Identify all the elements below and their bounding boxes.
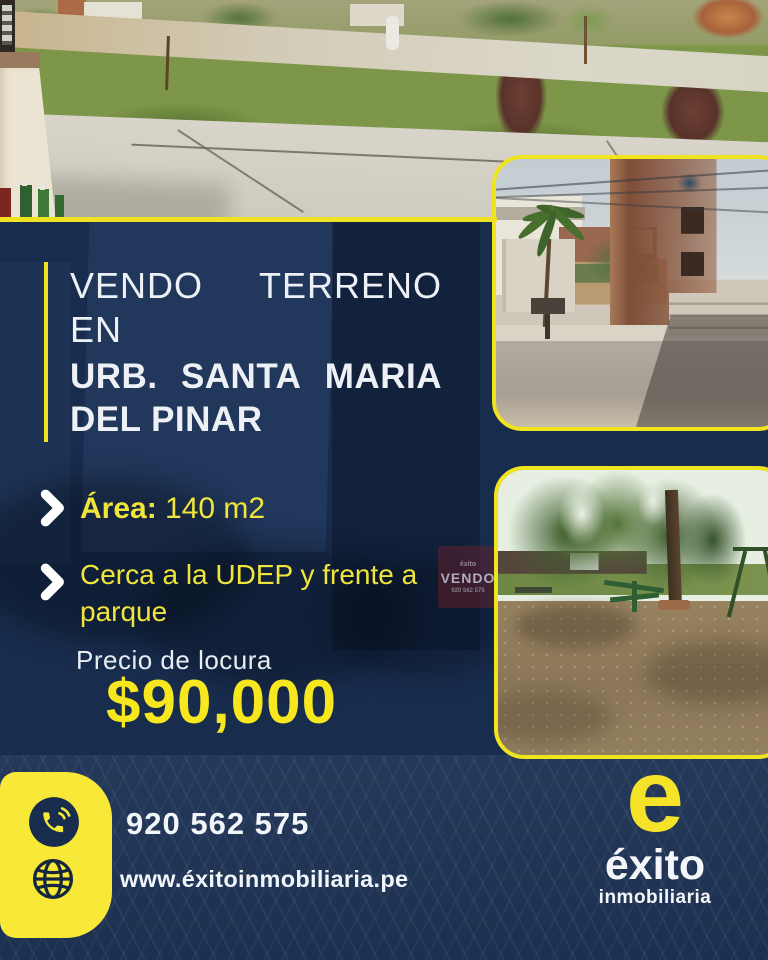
- title-line-1: VENDO TERRENO: [70, 264, 442, 308]
- swing-frame: [733, 547, 768, 552]
- title-accent-bar: [44, 262, 48, 442]
- feature-area: Área: 140 m2: [80, 492, 265, 526]
- chevron-right-icon: [38, 563, 68, 601]
- yellow-divider: [0, 217, 497, 222]
- title-word: TERRENO: [259, 264, 442, 308]
- globe-icon: [30, 856, 76, 902]
- brand-logo: e éxito inmobiliaria: [570, 744, 740, 908]
- feature-area-label: Área:: [80, 492, 157, 525]
- title-line-4: DEL PINAR: [70, 398, 442, 441]
- chevron-right-icon: [38, 489, 68, 527]
- sign-post: [545, 314, 550, 338]
- window-slats: [2, 5, 12, 45]
- title-word: VENDO: [70, 264, 203, 308]
- brick-ring: [658, 600, 689, 610]
- building-trim: [0, 52, 40, 70]
- distant-figure: [386, 16, 399, 50]
- brand-name: éxito: [570, 844, 740, 886]
- bottles: [0, 180, 140, 222]
- page-title: VENDO TERRENO EN URB. SANTA MARIA DEL PI…: [70, 264, 442, 441]
- title-line-2: EN: [70, 308, 442, 352]
- real-estate-flyer: éxito VENDO 920 562 575 VENDO TERRENO EN…: [0, 0, 768, 960]
- price-value: $90,000: [106, 668, 337, 738]
- brand-descriptor: inmobiliaria: [570, 888, 740, 908]
- title-line-3: URB. SANTA MARIA: [70, 355, 442, 398]
- playground-equipment: [632, 581, 637, 612]
- street-sign: [531, 298, 566, 314]
- inset-photo-street-lot: [492, 155, 768, 431]
- tree-trunk: [584, 16, 587, 64]
- phone-icon: [28, 796, 80, 848]
- sign-brand: éxito: [460, 561, 476, 568]
- title-word: URB.: [70, 355, 158, 398]
- tree-shadow: [515, 604, 635, 647]
- brand-mark-e: e: [570, 744, 740, 848]
- title-word: MARIA: [325, 355, 442, 398]
- title-word: SANTA: [181, 355, 301, 398]
- website-url: www.éxitoinmobiliaria.pe: [120, 866, 408, 893]
- feature-area-value: 140 m2: [157, 492, 265, 525]
- phone-number: 920 562 575: [126, 806, 309, 842]
- feature-location: Cerca a la UDEP y frente a parque: [80, 556, 460, 630]
- inset-photo-park: [494, 466, 768, 759]
- park-bench: [515, 587, 552, 593]
